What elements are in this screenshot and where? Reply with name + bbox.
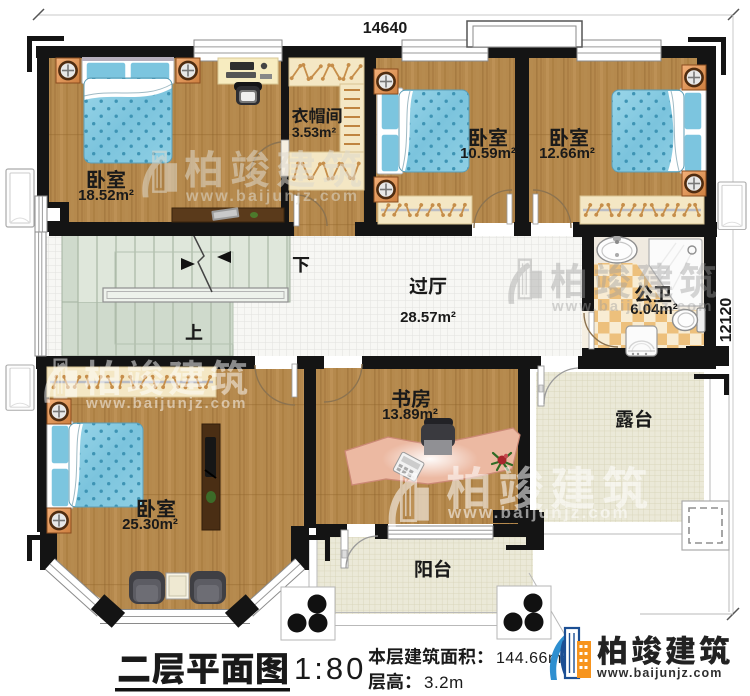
svg-text:3.53m²: 3.53m²: [292, 124, 337, 140]
svg-text:13.89m²: 13.89m²: [382, 406, 438, 423]
svg-text:www.baijunjz.com: www.baijunjz.com: [85, 395, 247, 412]
svg-text:12120: 12120: [718, 298, 735, 343]
svg-text:28.57m²: 28.57m²: [400, 309, 456, 326]
svg-text:1:80: 1:80: [294, 651, 366, 686]
svg-text:18.52m²: 18.52m²: [78, 187, 134, 204]
svg-text:12.66m²: 12.66m²: [539, 145, 595, 162]
svg-text:10.59m²: 10.59m²: [460, 145, 516, 162]
svg-text:www.baijunjz.com: www.baijunjz.com: [596, 666, 722, 680]
svg-text:3.2m: 3.2m: [424, 673, 464, 692]
svg-text:www.baijunjz.com: www.baijunjz.com: [185, 188, 359, 205]
svg-text:www.baijunjz.com: www.baijunjz.com: [447, 503, 630, 522]
svg-text:25.30m²: 25.30m²: [122, 516, 178, 533]
svg-text:www.baijunjz.com: www.baijunjz.com: [551, 298, 713, 315]
svg-text:14640: 14640: [363, 20, 408, 37]
